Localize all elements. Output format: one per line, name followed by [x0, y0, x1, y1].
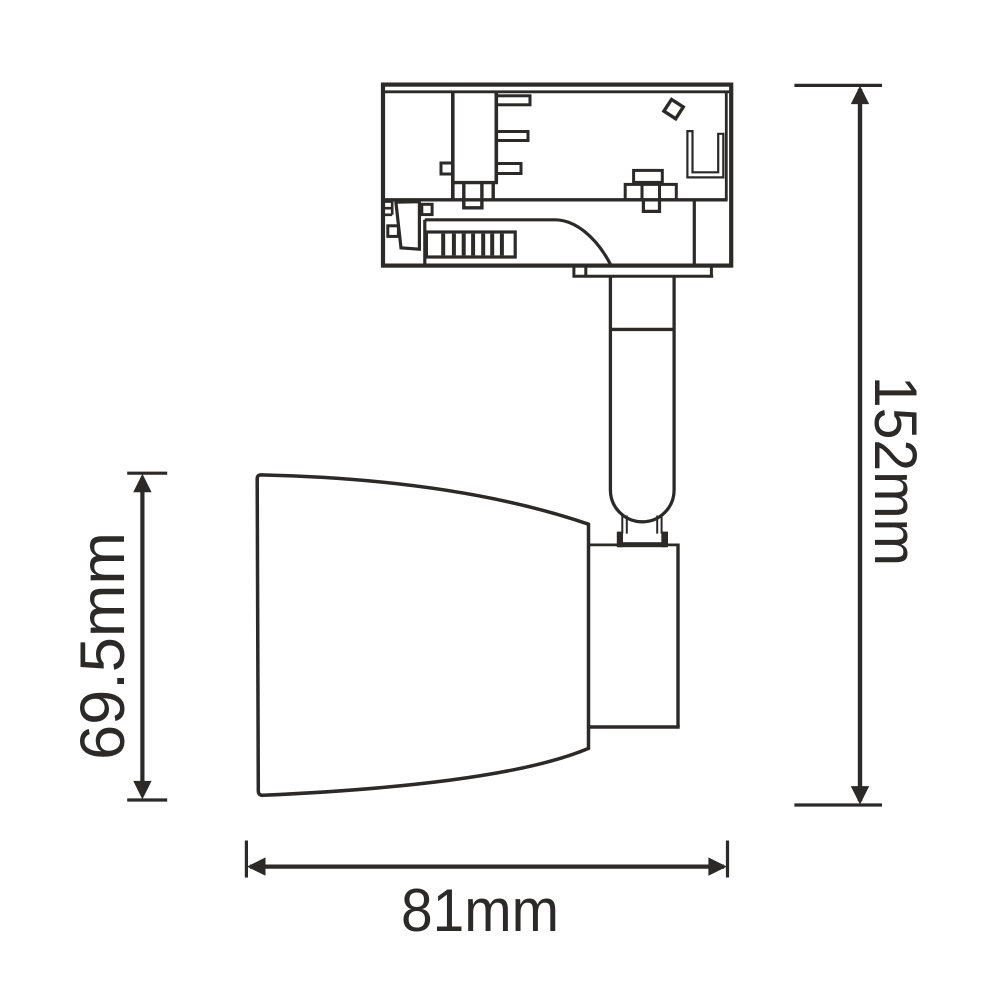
svg-text:81mm: 81mm: [401, 877, 559, 944]
svg-text:69.5mm: 69.5mm: [68, 532, 138, 760]
svg-text:152mm: 152mm: [862, 376, 929, 566]
